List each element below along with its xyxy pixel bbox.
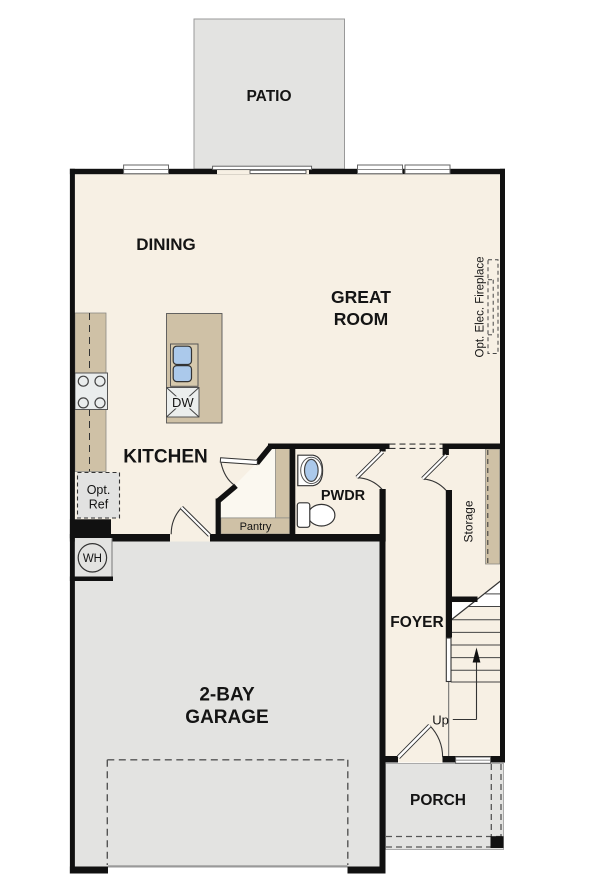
- svg-text:Pantry: Pantry: [240, 521, 272, 533]
- svg-text:KITCHEN: KITCHEN: [123, 447, 207, 468]
- svg-text:PWDR: PWDR: [321, 488, 366, 504]
- svg-text:PORCH: PORCH: [410, 792, 466, 809]
- svg-text:Storage: Storage: [462, 500, 476, 542]
- svg-text:GARAGE: GARAGE: [185, 707, 268, 728]
- svg-text:ROOM: ROOM: [334, 309, 388, 329]
- svg-text:Ref: Ref: [89, 497, 109, 511]
- svg-text:2-BAY: 2-BAY: [199, 685, 255, 706]
- svg-text:Opt.: Opt.: [87, 483, 111, 497]
- svg-text:Up: Up: [432, 712, 449, 727]
- svg-text:DINING: DINING: [136, 235, 196, 254]
- svg-text:Opt. Elec. Fireplace: Opt. Elec. Fireplace: [474, 257, 486, 358]
- svg-text:WH: WH: [83, 553, 102, 565]
- svg-text:GREAT: GREAT: [331, 287, 391, 307]
- svg-text:PATIO: PATIO: [246, 88, 291, 105]
- svg-text:DW: DW: [172, 395, 194, 410]
- svg-text:FOYER: FOYER: [390, 614, 443, 631]
